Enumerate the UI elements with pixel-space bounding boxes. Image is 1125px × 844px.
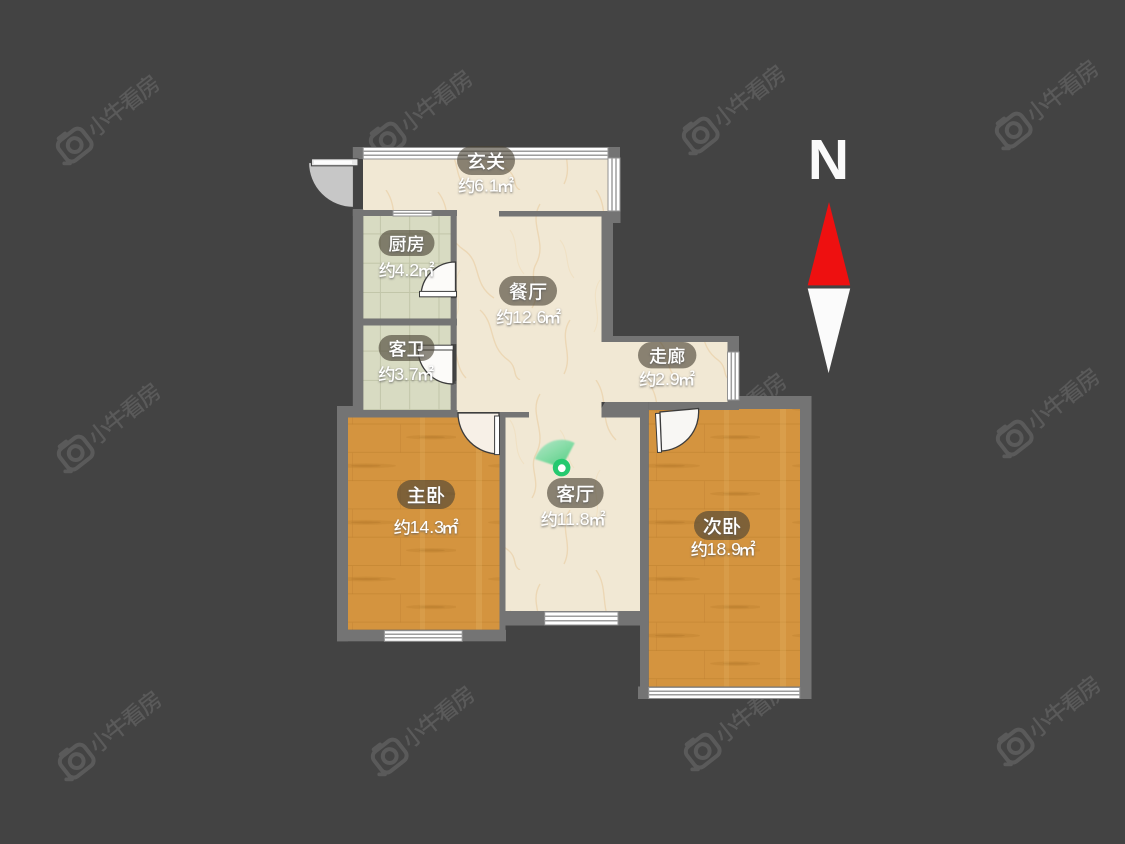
svg-text:14.3: 14.3: [410, 517, 444, 537]
svg-text:18.9: 18.9: [707, 539, 741, 559]
svg-text:3.7: 3.7: [394, 364, 418, 384]
svg-text:4.2: 4.2: [395, 260, 419, 280]
svg-text:6.1: 6.1: [474, 176, 498, 196]
svg-text:N: N: [808, 128, 849, 192]
svg-text:11.8: 11.8: [557, 509, 590, 529]
svg-text:2.9: 2.9: [655, 369, 679, 389]
svg-text:12.6: 12.6: [512, 307, 546, 327]
